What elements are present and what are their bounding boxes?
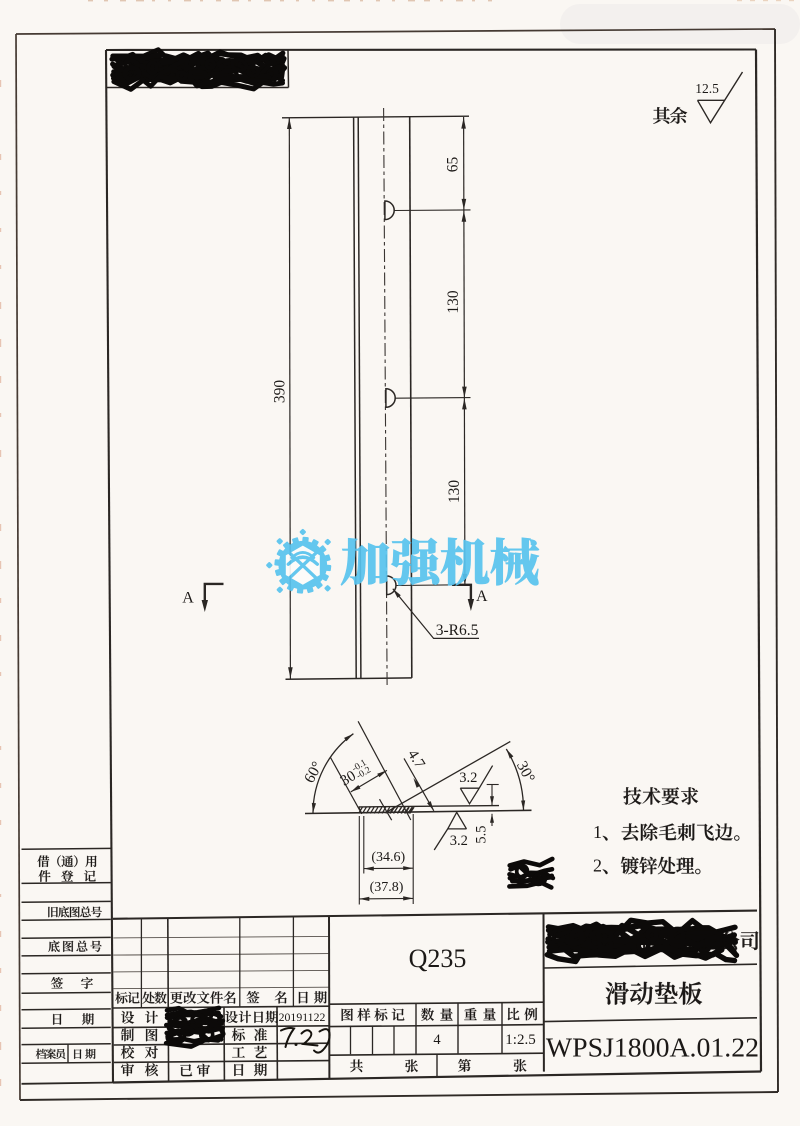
svg-text:390: 390 <box>271 380 288 404</box>
svg-text:3-R6.5: 3-R6.5 <box>436 622 479 639</box>
svg-text:130: 130 <box>446 480 463 504</box>
svg-text:3.2: 3.2 <box>450 833 468 849</box>
svg-text:Q235: Q235 <box>409 944 467 973</box>
svg-text:1: 1 <box>593 822 602 842</box>
svg-text:A: A <box>476 588 488 605</box>
svg-text:A: A <box>182 590 194 607</box>
svg-text:1:2.5: 1:2.5 <box>505 1032 535 1048</box>
svg-text:2: 2 <box>593 856 602 876</box>
svg-text:4: 4 <box>433 1032 441 1048</box>
svg-text:(34.6): (34.6) <box>371 850 405 865</box>
svg-text:130: 130 <box>445 290 462 314</box>
svg-text:5.5: 5.5 <box>473 825 489 843</box>
svg-text:12.5: 12.5 <box>695 81 719 96</box>
svg-text:WPSJ1800A.01.22: WPSJ1800A.01.22 <box>546 1032 759 1063</box>
svg-text:3.2: 3.2 <box>459 770 477 786</box>
svg-text:20191122: 20191122 <box>279 1010 326 1024</box>
svg-text:(37.8): (37.8) <box>370 880 404 895</box>
svg-text:65: 65 <box>445 157 462 173</box>
